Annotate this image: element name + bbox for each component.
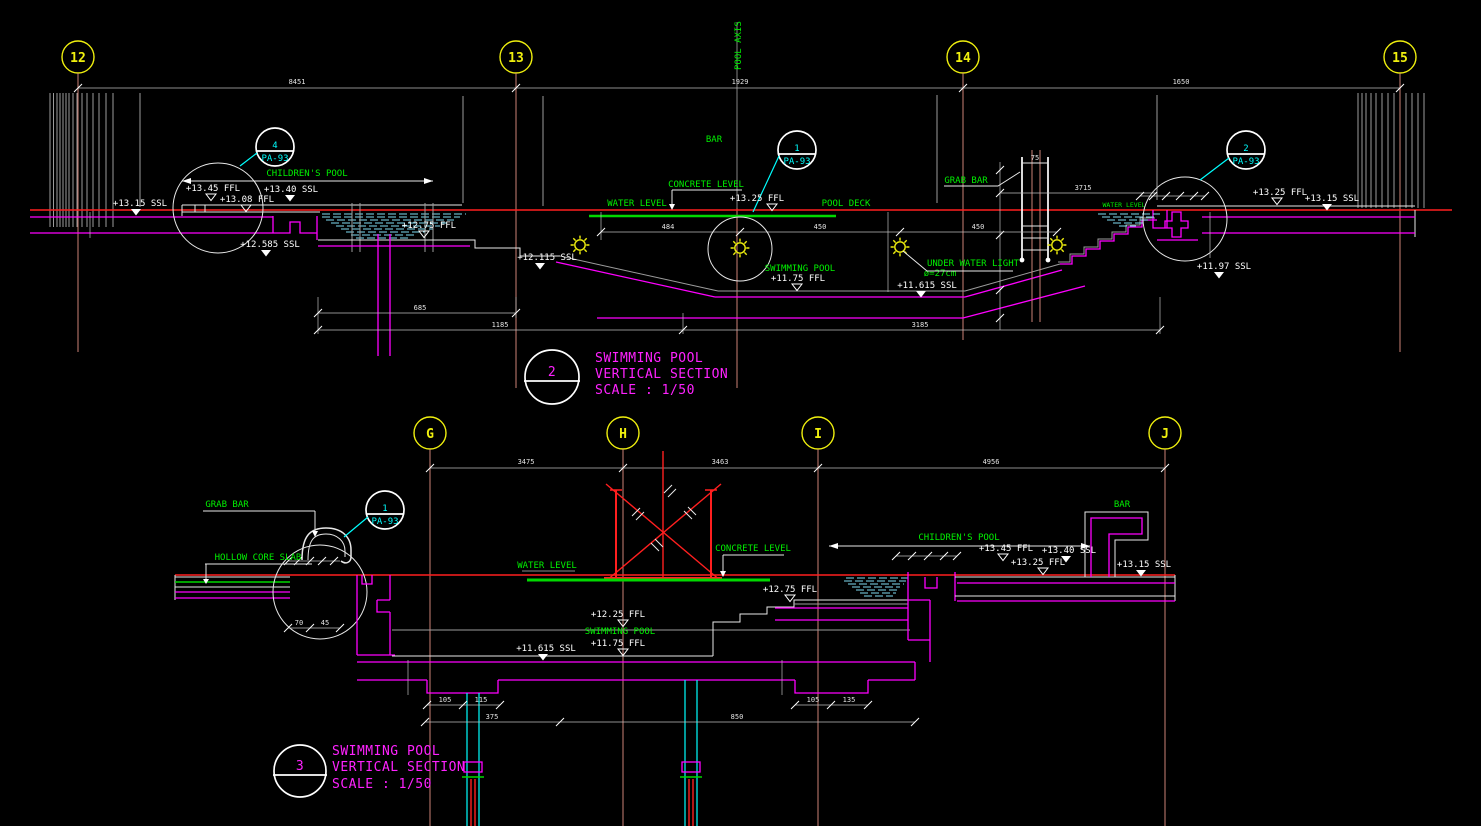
callout-sheet: PA-93: [261, 154, 288, 164]
section-title-line2: VERTICAL SECTION: [595, 367, 728, 382]
dim-label: 375: [486, 713, 499, 721]
right-wall-hatch: [1358, 93, 1424, 208]
bar-label: BAR: [706, 135, 723, 145]
dim-label: 450: [814, 223, 827, 231]
dim-label: 850: [731, 713, 744, 721]
dim-label: 484: [662, 223, 675, 231]
callout-number: 2: [1243, 144, 1248, 154]
grid-bubble-J: J: [1161, 427, 1169, 442]
water-level-label: WATER LEVEL: [607, 199, 667, 209]
structure-verticals: [463, 95, 1157, 206]
grab-bar-label: GRAB BAR: [944, 176, 988, 186]
grid-dim: 1650: [1173, 78, 1190, 86]
dim-label: 135: [843, 696, 856, 704]
elevation-label: +12.25 FFL: [591, 610, 645, 620]
hollow-core-slab-label: HOLLOW CORE SLAB: [215, 553, 302, 563]
top-section: 12 13 14 15 8451 1929 1650 POOL AXIS: [30, 21, 1452, 404]
dim-label: 3185: [912, 321, 929, 329]
bar-label: BAR: [1114, 500, 1131, 510]
elevation-label: +13.45 FFL: [979, 544, 1033, 554]
pool-axis: POOL AXIS: [734, 21, 744, 388]
swimming-pool-label: SWIMMING POOL: [765, 264, 835, 274]
callout-sheet: PA-93: [371, 517, 398, 527]
elevation-label: +11.615 SSL: [516, 644, 576, 654]
childrens-pool-label: CHILDREN'S POOL: [918, 533, 999, 543]
elevation-label: +13.15 SSL: [1305, 194, 1359, 204]
section-title-3: 3 SWIMMING POOL VERTICAL SECTION SCALE :…: [273, 744, 465, 797]
bottom-grid-dim-line: 3475 3463 4956: [426, 458, 1169, 472]
elevation-label: +11.75 FFL: [771, 274, 825, 284]
callout-number: 1: [794, 144, 799, 154]
elevation-label: +11.75 FFL: [591, 639, 645, 649]
dim-label: 45: [321, 619, 329, 627]
grid-dim: 1929: [732, 78, 749, 86]
elevation-label: +12.585 SSL: [240, 240, 300, 250]
elevation-label: +13.25 FFL: [730, 194, 784, 204]
bottom-annotations: GRAB BAR HOLLOW CORE SLAB WATER LEVEL CO…: [203, 500, 1090, 637]
elevation-label: +13.25 FFL: [1011, 558, 1065, 568]
callout-4: 4 PA-93: [240, 128, 294, 166]
section-title-line1: SWIMMING POOL: [332, 744, 440, 759]
swimming-pool-label: SWIMMING POOL: [585, 627, 655, 637]
section-number: 3: [296, 759, 304, 774]
pile-2: [680, 680, 702, 826]
concrete-level-label: CONCRETE LEVEL: [668, 180, 744, 190]
grid-dim: 3463: [712, 458, 729, 466]
callout-sheet: PA-93: [783, 157, 810, 167]
dim-label: 1185: [492, 321, 509, 329]
pool-sections-drawing: 12 13 14 15 8451 1929 1650 POOL AXIS: [0, 0, 1481, 826]
callout-1-bottom: 1 PA-93: [344, 491, 404, 537]
dim-label: 685: [414, 304, 427, 312]
section-title-line1: SWIMMING POOL: [595, 351, 703, 366]
pool-axis-label: POOL AXIS: [734, 21, 744, 70]
elevation-label: +13.40 SSL: [264, 185, 318, 195]
grid-bubble-I: I: [814, 427, 822, 442]
top-annotations: CHILDREN'S POOL BAR CONCRETE LEVEL WATER…: [182, 135, 1020, 279]
grab-bar-label: GRAB BAR: [205, 500, 249, 510]
light-icon: [731, 239, 750, 258]
grid-bubble-12: 12: [70, 51, 86, 66]
dim-label: 105: [807, 696, 820, 704]
red-braced-frame: [604, 451, 722, 581]
ladder-dim: 75: [1031, 154, 1039, 162]
under-water-lights: [571, 236, 1067, 258]
dim-label: 105: [439, 696, 452, 704]
elevation-label: +13.08 FFL: [220, 195, 274, 205]
callout-number: 1: [382, 504, 387, 514]
light-icon: [1048, 236, 1067, 255]
pool-deck-label: POOL DECK: [822, 199, 871, 209]
callout-number: 4: [272, 141, 277, 151]
water-level-label: WATER LEVEL: [517, 561, 577, 571]
grid-bubble-14: 14: [955, 51, 971, 66]
elevation-label: +11.97 SSL: [1197, 262, 1251, 272]
elevation-label: +13.15 SSL: [113, 199, 167, 209]
bottom-section: G H I J 3475 3463 4956 1 PA-93: [175, 417, 1181, 826]
callout-2: 2 PA-93: [1200, 131, 1265, 180]
childrens-pool-label: CHILDREN'S POOL: [266, 169, 347, 179]
bottom-elevations: +12.25 FFL +11.75 FFL +11.615 SSL +12.75…: [516, 544, 1171, 661]
dim-label: 115: [475, 696, 488, 704]
section-title-line3: SCALE : 1/50: [332, 777, 432, 792]
elevation-label: +13.15 SSL: [1117, 560, 1171, 570]
elevation-label: +13.45 FFL: [186, 184, 240, 194]
section-title-line2: VERTICAL SECTION: [332, 760, 465, 775]
concrete-level-label: CONCRETE LEVEL: [715, 544, 791, 554]
water-level-label-small: WATER LEVEL: [1102, 201, 1145, 209]
grid-bubble-H: H: [619, 427, 627, 442]
elevation-label: +12.75 FFL: [402, 221, 456, 231]
section-title-line3: SCALE : 1/50: [595, 383, 695, 398]
elevation-label: +13.40 SSL: [1042, 546, 1096, 556]
grid-dim: 4956: [983, 458, 1000, 466]
cad-canvas: 12 13 14 15 8451 1929 1650 POOL AXIS: [0, 0, 1481, 826]
dim-label: 3715: [1075, 184, 1092, 192]
elevation-label: +11.615 SSL: [897, 281, 957, 291]
section-number: 2: [548, 365, 556, 380]
top-grid-dim-line: 8451 1929 1650: [74, 78, 1404, 92]
grid-dim: 3475: [518, 458, 535, 466]
grid-dim: 8451: [289, 78, 306, 86]
pile-1: [462, 693, 484, 826]
dim-label: 450: [972, 223, 985, 231]
elevation-label: +13.25 FFL: [1253, 188, 1307, 198]
grid-bubble-15: 15: [1392, 51, 1408, 66]
under-water-light-label: UNDER WATER LIGHT: [927, 259, 1020, 269]
light-icon: [571, 236, 590, 255]
bottom-grid-bubbles: G H I J: [414, 417, 1181, 826]
elevation-label: +12.75 FFL: [763, 585, 817, 595]
grid-bubble-G: G: [426, 427, 434, 442]
top-grid-bubbles: 12 13 14 15: [62, 41, 1416, 388]
elevation-label: +12.115 SSL: [517, 253, 577, 263]
section-title-2: 2 SWIMMING POOL VERTICAL SECTION SCALE :…: [524, 350, 728, 404]
callout-sheet: PA-93: [1232, 157, 1259, 167]
grid-bubble-13: 13: [508, 51, 524, 66]
dim-label: 70: [295, 619, 303, 627]
